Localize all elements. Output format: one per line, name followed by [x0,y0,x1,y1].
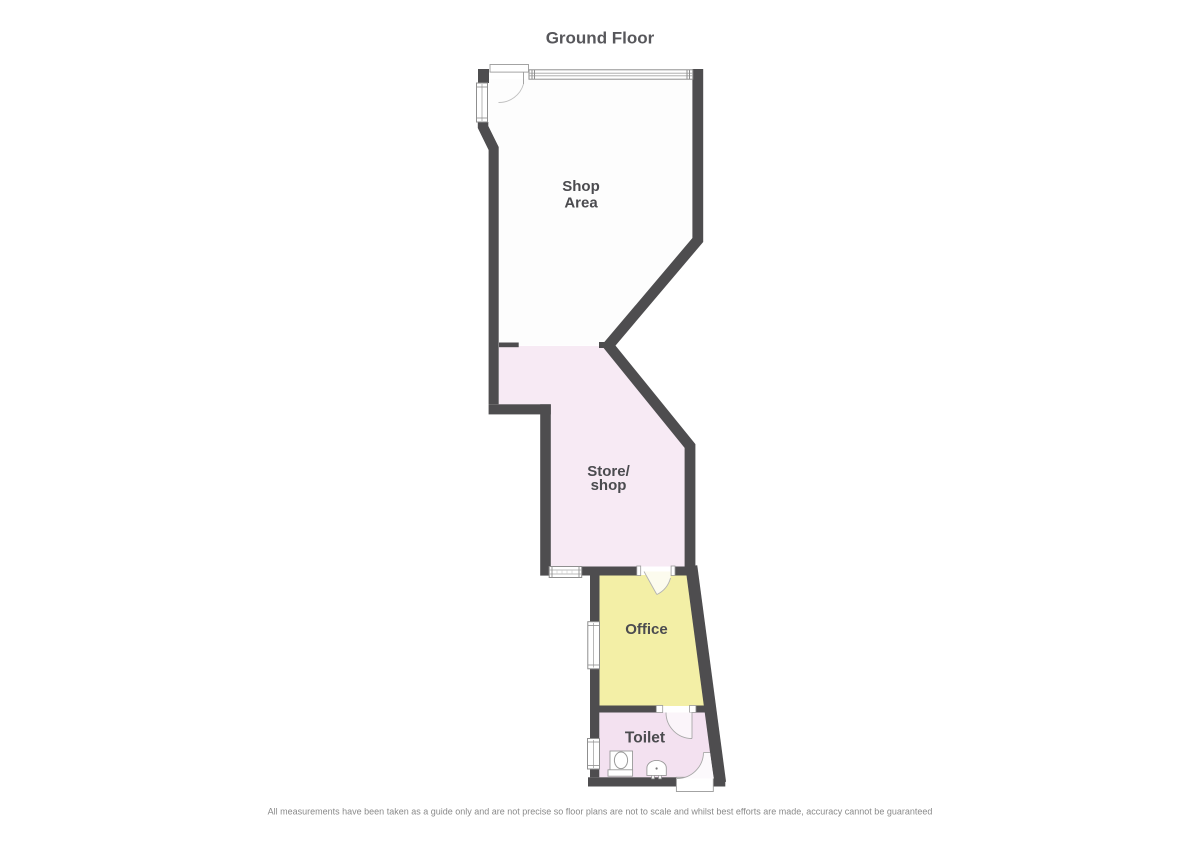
svg-text:All measurements have been tak: All measurements have been taken as a gu… [268,807,933,817]
svg-text:Shop: Shop [562,178,600,195]
svg-text:shop: shop [591,477,627,494]
svg-text:Toilet: Toilet [625,730,665,747]
svg-text:Office: Office [625,621,668,638]
svg-text:Ground Floor: Ground Floor [546,28,655,47]
svg-text:Area: Area [564,194,598,211]
